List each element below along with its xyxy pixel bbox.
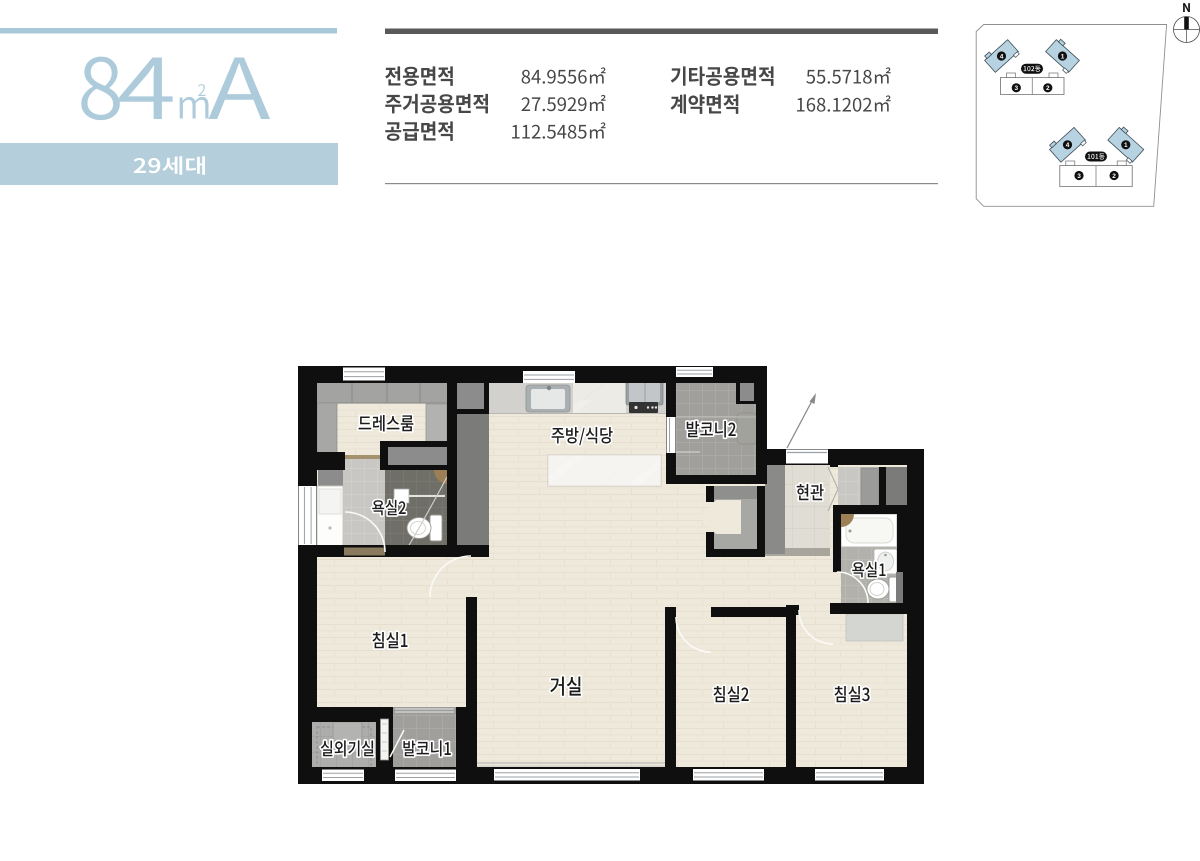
svg-text:3: 3	[1014, 85, 1018, 92]
svg-text:4: 4	[1000, 53, 1004, 60]
svg-text:4: 4	[1066, 142, 1070, 149]
svg-text:3: 3	[1077, 173, 1081, 180]
svg-text:1: 1	[1124, 142, 1128, 149]
svg-text:1: 1	[1061, 53, 1065, 60]
svg-text:2: 2	[1112, 173, 1116, 180]
svg-text:2: 2	[1046, 85, 1050, 92]
